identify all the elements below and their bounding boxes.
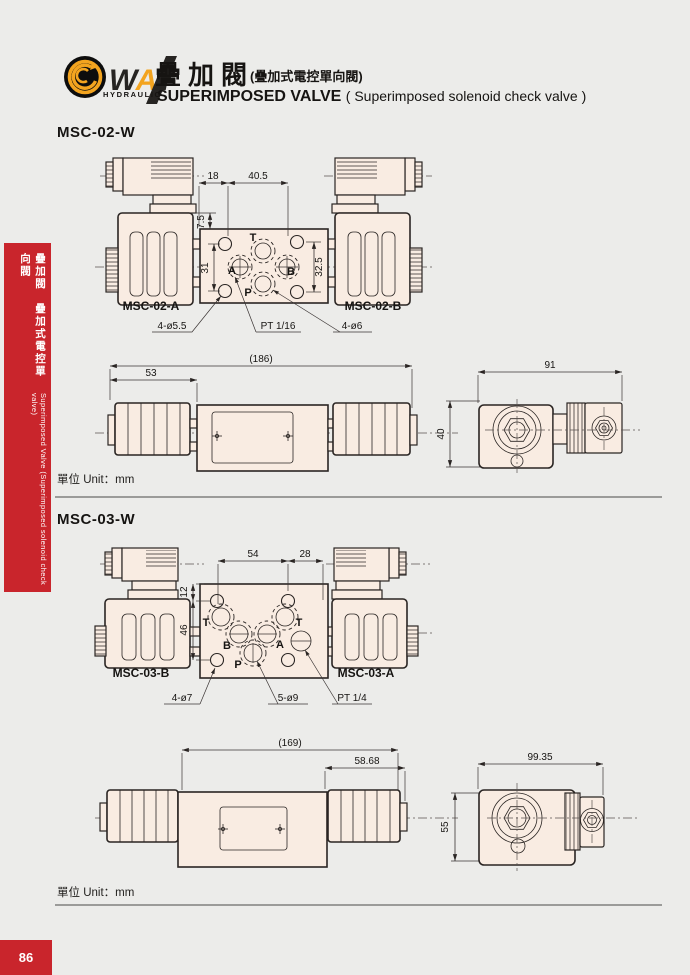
msc03-top-view-drawing: T B A T P 54 28 12 46 4-ø7 5-ø9: [85, 540, 437, 740]
page-title-en: SUPERIMPOSED VALVE ( Superimposed soleno…: [157, 88, 586, 106]
dim-54: 54: [247, 549, 259, 560]
left-solenoid: [106, 158, 200, 305]
left-solenoid: [95, 548, 200, 668]
end-view-outline: [479, 403, 622, 468]
dim-58-68: 58.68: [354, 756, 379, 767]
msc03-end-view-drawing: 55 99.35: [435, 738, 690, 908]
msc02-side-view-drawing: (186) 53: [85, 350, 465, 485]
port-label-b: B: [223, 640, 231, 652]
dim-40: 40: [436, 428, 447, 440]
bottom-divider: [55, 904, 662, 906]
page-title-zh-paren: (疊加式電控單向閥): [250, 66, 363, 85]
dim-91: 91: [544, 360, 556, 371]
section-divider: [55, 496, 662, 498]
dim-55: 55: [440, 821, 451, 833]
port-label-t: T: [250, 232, 257, 244]
callout-4-o6: 4-ø6: [342, 321, 363, 332]
port-label-a: A: [276, 639, 284, 651]
callout-pt-1-4: PT 1/4: [337, 693, 367, 704]
page-title-en-main: SUPERIMPOSED VALVE: [157, 88, 346, 105]
msc02-end-view-drawing: 40 91: [435, 350, 690, 485]
msc02-top-view-drawing: T A B P 18 40.5 7.5 31 32.5 4-ø5.5: [85, 148, 437, 346]
variant-label-msc02a: MSC-02-A: [123, 299, 180, 313]
side-tab: 疊加閥 疊加式電控單向閥 Superimposed Valve (Superim…: [4, 243, 51, 592]
port-label-a: A: [228, 265, 236, 277]
page-title-zh: 疊加閥: [155, 55, 254, 92]
valve-side-outline: [108, 403, 417, 471]
callout-5-o9: 5-ø9: [278, 693, 299, 704]
dim-186: (186): [249, 354, 272, 365]
dim-31: 31: [200, 262, 211, 274]
variant-label-msc02b: MSC-02-B: [345, 299, 402, 313]
port-label-b: B: [287, 266, 295, 278]
section-title-msc03: MSC-03-W: [57, 511, 135, 528]
variant-label-msc03a: MSC-03-A: [338, 666, 395, 680]
page-number-badge: 86: [0, 940, 52, 975]
unit-label-msc03: 單位 Unit：mm: [57, 884, 134, 900]
dim-7-5: 7.5: [196, 215, 207, 229]
right-solenoid: [328, 548, 418, 668]
page-title-en-paren: ( Superimposed solenoid check valve ): [346, 88, 586, 104]
dim-40-5: 40.5: [248, 171, 268, 182]
valve-side-outline: [100, 790, 407, 867]
dimensions: (186) 53: [110, 354, 412, 408]
unit-label-msc02: 單位 Unit：mm: [57, 471, 134, 487]
msc03-side-view-drawing: (169) 58.68: [85, 738, 465, 908]
valve-body: T B A T P: [200, 584, 328, 678]
dim-46: 46: [179, 624, 190, 636]
side-tab-text-zh: 疊加閥 疊加式電控單向閥: [4, 253, 48, 390]
section-title-msc02: MSC-02-W: [57, 124, 135, 141]
dim-32-5: 32.5: [314, 257, 325, 277]
variant-label-msc03b: MSC-03-B: [113, 666, 170, 680]
port-label-p: P: [234, 659, 241, 671]
port-label-p: P: [244, 287, 251, 299]
dim-12: 12: [179, 586, 190, 598]
dim-18: 18: [207, 171, 219, 182]
dim-169: (169): [278, 738, 301, 749]
port-label-t1: T: [203, 617, 210, 629]
catalog-page: WAY HYDRAULIC 疊加閥 (疊加式電控單向閥) SUPERIMPOSE…: [0, 0, 690, 975]
right-solenoid: [328, 158, 422, 305]
logo-mark-icon: [64, 56, 106, 98]
port-label-t2: T: [296, 617, 303, 629]
callout-4-o7: 4-ø7: [172, 693, 193, 704]
logo-hydraulic-text: HYDRAULIC: [103, 90, 162, 99]
dim-53: 53: [145, 368, 157, 379]
side-tab-text-en: Superimposed Valve (Superimposed solenoi…: [4, 393, 48, 592]
callout-4-o5-5: 4-ø5.5: [158, 321, 187, 332]
dim-28: 28: [299, 549, 311, 560]
callout-pt-1-16: PT 1/16: [261, 321, 296, 332]
end-view-outline: [479, 790, 604, 865]
dim-99-35: 99.35: [527, 752, 552, 763]
